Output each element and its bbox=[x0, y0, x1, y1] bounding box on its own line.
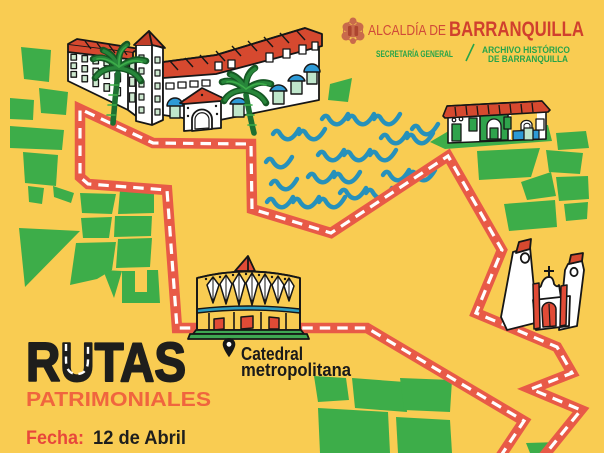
svg-text:Fecha:: Fecha: bbox=[26, 427, 84, 449]
svg-text:SECRETARÍA GENERAL: SECRETARÍA GENERAL bbox=[376, 49, 453, 59]
svg-text:ALCALDÍA DE: ALCALDÍA DE bbox=[368, 22, 446, 39]
svg-text:BARRANQUILLA: BARRANQUILLA bbox=[449, 18, 584, 41]
svg-text:metropolitana: metropolitana bbox=[241, 360, 352, 380]
svg-text:RUTAS: RUTAS bbox=[26, 331, 186, 393]
svg-text:PATRIMONIALES: PATRIMONIALES bbox=[26, 388, 211, 411]
svg-text:12 de Abril: 12 de Abril bbox=[93, 427, 186, 449]
svg-text:DE BARRANQUILLA: DE BARRANQUILLA bbox=[488, 54, 568, 64]
